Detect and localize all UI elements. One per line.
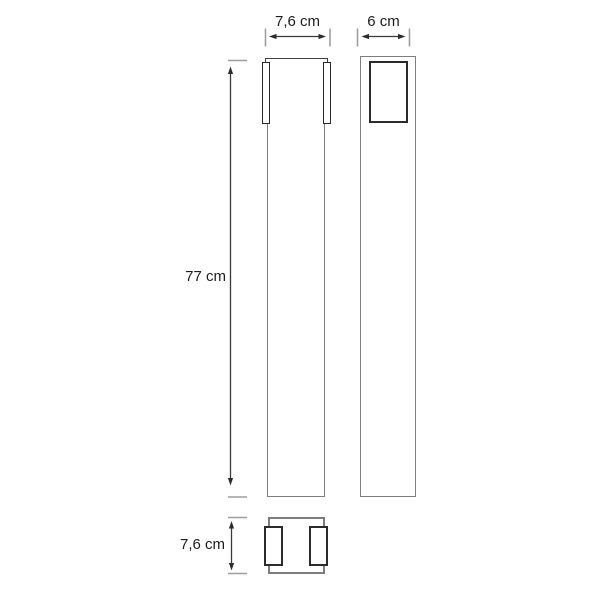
front-width-dimension (266, 29, 331, 47)
front-view-left-fin (262, 62, 270, 124)
side-view-light-window (369, 61, 408, 123)
arrowhead-right-icon (398, 34, 406, 39)
height-label: 77 cm (140, 269, 226, 286)
top-view-left-fin (264, 526, 283, 566)
arrowhead-up-icon (228, 67, 233, 75)
arrowhead-down-icon (229, 563, 234, 571)
arrowhead-down-icon (228, 478, 233, 486)
height-dimension (228, 61, 247, 498)
arrowhead-left-icon (269, 34, 277, 39)
dimension-diagram: 7,6 cm 6 cm 77 cm 7,6 cm (0, 0, 600, 600)
base-width-label: 7,6 cm (140, 537, 225, 554)
arrowhead-right-icon (319, 34, 327, 39)
base-width-dimension (228, 518, 247, 574)
front-view-right-fin (323, 62, 331, 124)
front-view-body (267, 59, 325, 497)
top-view-right-fin (309, 526, 328, 566)
front-width-label: 7,6 cm (265, 14, 330, 31)
depth-dimension (358, 29, 410, 47)
front-view-head-cap (265, 58, 328, 124)
arrowhead-left-icon (362, 34, 370, 39)
depth-label: 6 cm (357, 14, 410, 31)
arrowhead-up-icon (229, 521, 234, 529)
